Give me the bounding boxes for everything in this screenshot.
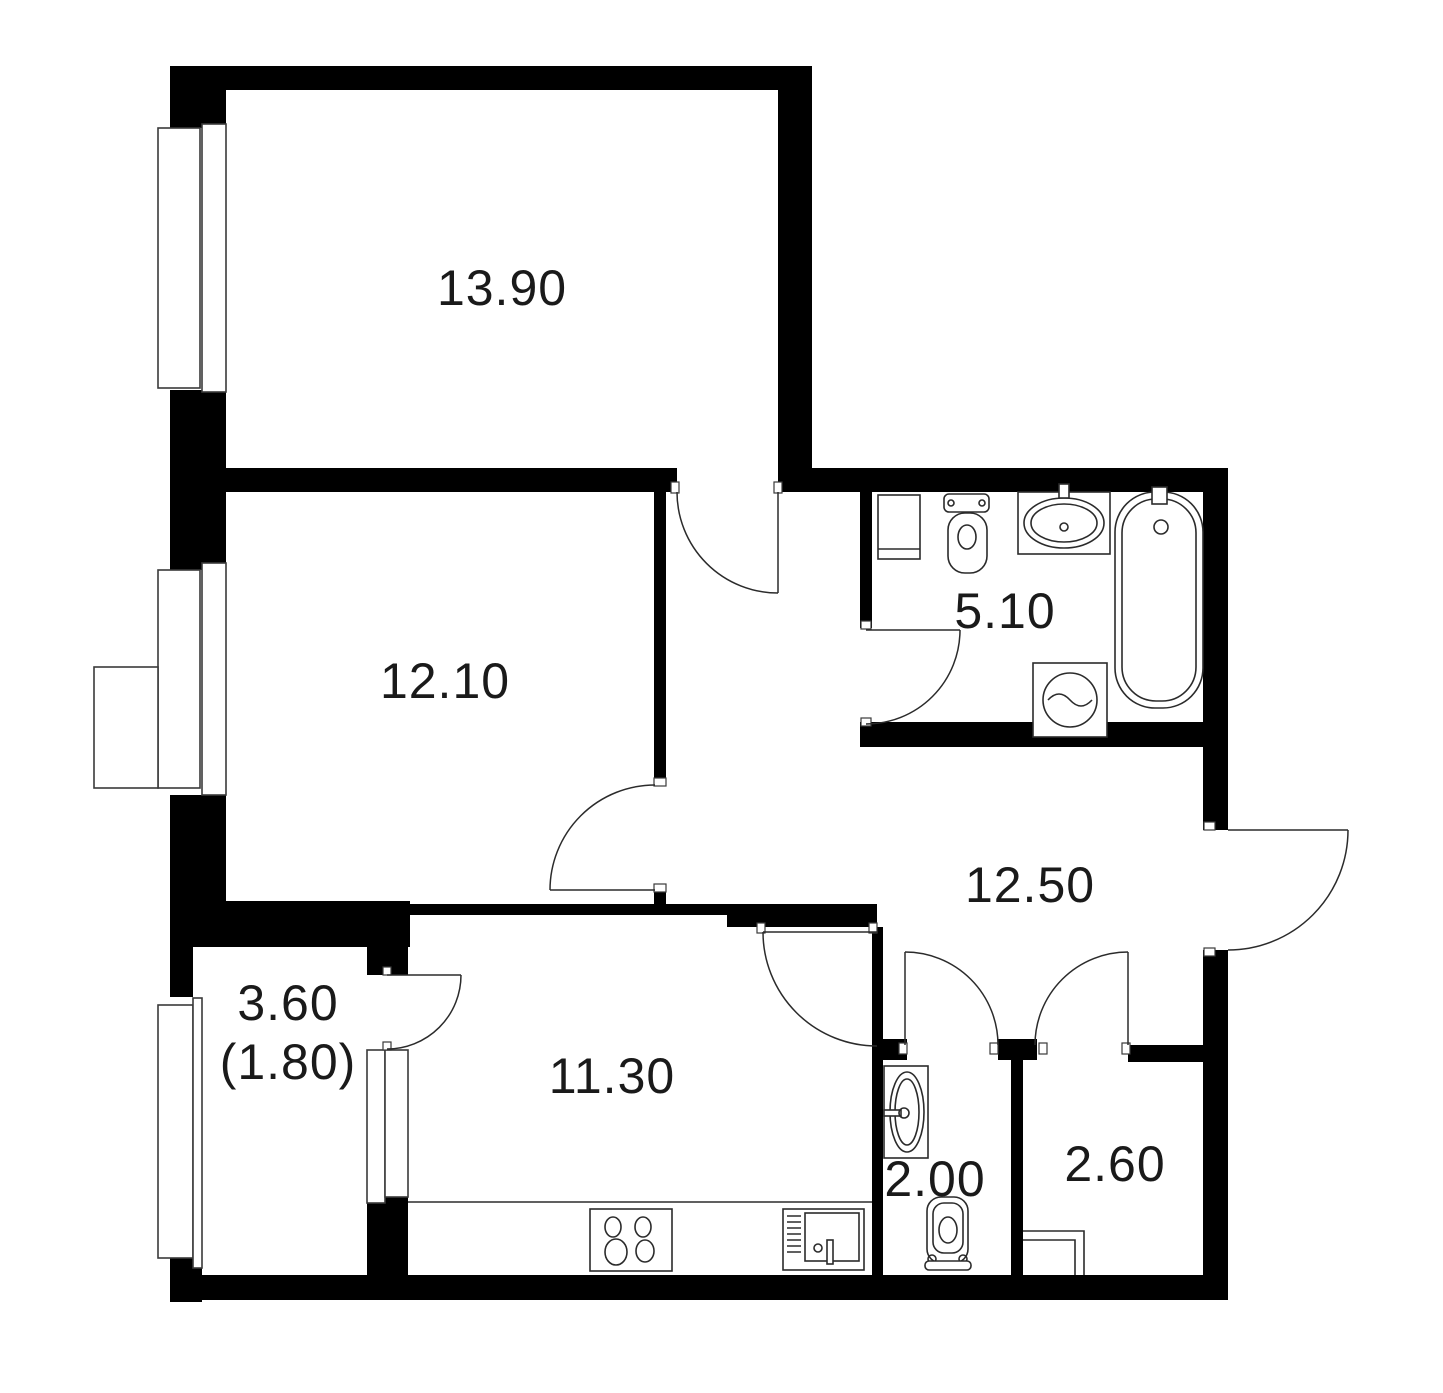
door-frame	[1204, 948, 1215, 956]
wall-storage-stub	[1128, 1045, 1203, 1062]
fixture-washing-machine	[1033, 663, 1107, 737]
fixture-toilet	[944, 494, 989, 573]
balcony-window	[193, 998, 202, 1268]
door-frame	[774, 482, 782, 493]
area-label-hallway: 12.50	[965, 857, 1095, 913]
fixture-stove-hob	[590, 1209, 672, 1271]
windows	[94, 124, 408, 1268]
door-frame	[1122, 1043, 1130, 1054]
wall-bathroom-west	[860, 492, 872, 628]
area-label-bedroom-2: 12.10	[380, 653, 510, 709]
wall-kitchen-east	[872, 927, 883, 1275]
wall-left-balcony	[170, 947, 193, 997]
bedroom-2-door	[550, 785, 655, 890]
area-label-balcony: 3.60	[237, 975, 338, 1031]
wall-wc-storage-divider	[1011, 1060, 1023, 1275]
wall-bedroom2-east	[654, 492, 666, 780]
door-frame	[654, 778, 666, 786]
balcony-window-sill	[158, 1005, 193, 1258]
wall-bottom	[170, 1275, 1228, 1300]
bedroom-1-door	[677, 492, 778, 593]
wall-top	[170, 66, 812, 90]
area-label-bedroom-1: 13.90	[437, 260, 567, 316]
area-label-balcony-reduced: (1.80)	[220, 1034, 357, 1090]
door-frame	[1039, 1043, 1047, 1054]
fixture-wc-washbasin	[884, 1066, 928, 1158]
fixture-wc-toilet	[925, 1197, 971, 1270]
floor-plan-page: 13.90 12.10 5.10 12.50 11.30 3.60 (1.80)…	[0, 0, 1443, 1393]
wall-left-mid1	[170, 390, 226, 570]
door-frame	[861, 718, 871, 726]
fixture-washbasin	[1018, 484, 1110, 554]
wall-bedrooms-divider	[226, 468, 677, 492]
storage-door	[1035, 952, 1128, 1045]
bedroom-2-window	[202, 563, 226, 795]
door-frame	[861, 621, 871, 629]
bedroom-1-window	[202, 124, 226, 392]
wc-door	[905, 952, 998, 1045]
area-label-wc: 2.00	[884, 1151, 985, 1207]
wall-center-stub	[998, 1039, 1037, 1060]
door-frames	[383, 482, 1215, 1054]
fixture-kitchen-sink	[783, 1209, 864, 1270]
wall-right-upper	[1203, 492, 1228, 830]
wall-bedroom2-south	[170, 901, 410, 947]
balcony-door	[387, 975, 461, 1049]
area-label-kitchen: 11.30	[549, 1048, 675, 1104]
bedroom-2-window-sill	[158, 570, 200, 788]
wall-balcony-partition-bottom	[367, 1197, 408, 1277]
kitchen-fixtures	[408, 1202, 872, 1271]
fixture-shelf	[878, 495, 920, 559]
wall-kitchen-north-thick	[727, 904, 877, 927]
door-frame	[654, 884, 666, 892]
wall-right-lower	[1203, 950, 1228, 1300]
wall-bedroom1-right	[778, 66, 812, 492]
balcony-block-window	[385, 1050, 408, 1197]
bedroom-1-window-sill	[158, 128, 200, 388]
bathroom-door	[866, 630, 960, 724]
door-frame	[990, 1043, 998, 1054]
facade-ledge	[94, 667, 158, 788]
area-label-bathroom: 5.10	[954, 583, 1055, 639]
fixture-bathtub	[1115, 487, 1203, 708]
storage-fixtures	[1023, 1231, 1084, 1275]
fixture-vent-duct	[1023, 1231, 1084, 1275]
door-frame	[671, 482, 679, 493]
entrance-door	[1228, 830, 1348, 950]
area-label-storage: 2.60	[1064, 1136, 1165, 1192]
door-frame	[899, 1043, 907, 1054]
wall-left-corner	[170, 66, 226, 128]
balcony-block-window-sill	[367, 1050, 385, 1203]
wall-kitchen-north-thin	[408, 904, 764, 915]
door-frame	[1204, 822, 1215, 830]
kitchen-door	[763, 932, 877, 1046]
floor-plan-svg: 13.90 12.10 5.10 12.50 11.30 3.60 (1.80)…	[0, 0, 1443, 1393]
door-frame	[383, 967, 391, 975]
